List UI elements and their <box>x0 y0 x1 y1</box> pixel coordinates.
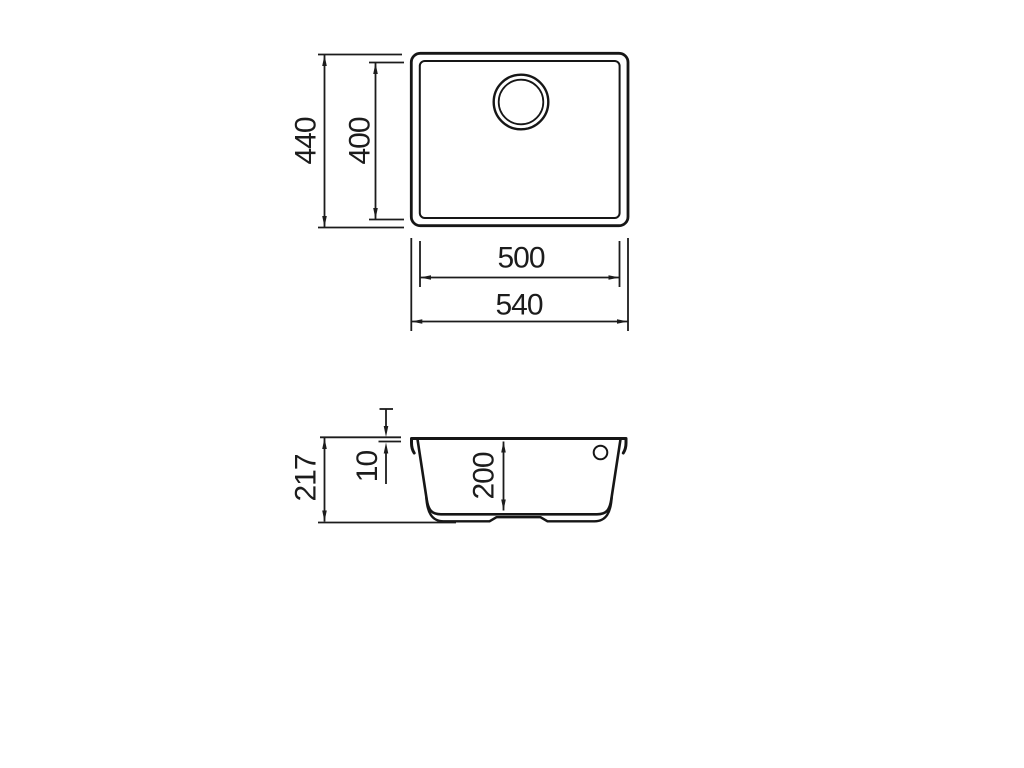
drawing-canvas: 440 400 500 540 <box>0 0 1024 768</box>
top-view-group <box>411 53 628 225</box>
arrowhead-up <box>373 63 378 74</box>
dim-label-inner-height: 400 <box>344 117 377 164</box>
dim-bowl-depth: 200 <box>468 442 506 511</box>
arrowhead-up <box>322 55 327 66</box>
arrowhead-up <box>384 443 389 454</box>
dim-label-inner-width: 500 <box>497 242 544 275</box>
arrowhead-right <box>609 275 620 280</box>
dim-rim-thickness: 10 <box>351 409 401 484</box>
sink-inner-rect <box>420 61 620 218</box>
arrowhead-up <box>501 442 506 453</box>
arrowhead-up <box>322 438 327 449</box>
technical-drawing: 440 400 500 540 <box>0 0 1024 768</box>
arrowhead-down <box>373 208 378 219</box>
dim-label-total-height: 217 <box>290 454 323 501</box>
arrowhead-left <box>411 319 422 324</box>
drain-outer-circle <box>494 75 549 130</box>
dim-label-rim-thickness: 10 <box>351 451 384 483</box>
section-underside-profile <box>426 497 611 521</box>
arrowhead-left <box>420 275 431 280</box>
dim-label-outer-height: 440 <box>290 117 323 164</box>
arrowhead-down <box>322 216 327 227</box>
overflow-hole-circle <box>594 446 608 460</box>
dim-inner-width: 500 <box>420 241 620 287</box>
arrowhead-down <box>322 511 327 522</box>
drain-inner-circle <box>499 80 544 125</box>
section-view-group <box>412 439 627 522</box>
dim-inner-height: 400 <box>344 63 405 220</box>
arrowhead-right <box>617 319 628 324</box>
arrowhead-down <box>384 426 389 437</box>
arrowhead-down <box>501 500 506 511</box>
section-bowl-inner-profile <box>418 440 621 514</box>
dim-label-outer-width: 540 <box>495 289 542 322</box>
dim-label-bowl-depth: 200 <box>468 452 501 499</box>
